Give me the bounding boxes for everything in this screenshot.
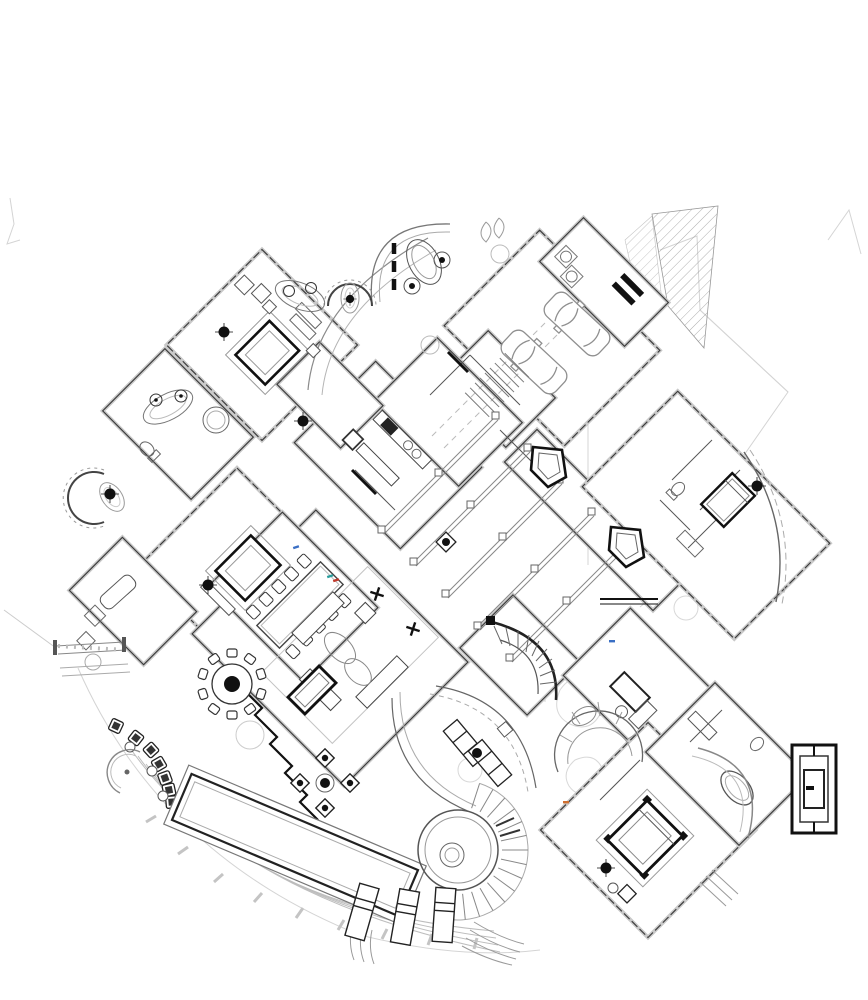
media-wall — [792, 745, 836, 833]
sun-loungers — [345, 883, 456, 945]
lap-pool — [164, 765, 426, 925]
right-chevron-mark — [828, 210, 861, 254]
left-margin-mark — [7, 198, 20, 244]
turret-bay-north — [324, 280, 376, 313]
ball-table — [472, 748, 482, 758]
floor-plan-canvas: Black-and-white CAD floor plan of a larg… — [0, 0, 868, 1000]
entry-fountain — [399, 234, 450, 294]
turret-bay-west — [63, 468, 129, 528]
lounge-pair — [443, 720, 512, 787]
half-round-bench — [107, 750, 140, 793]
floor-plan-drawing: Black-and-white CAD floor plan of a larg… — [0, 0, 868, 1000]
